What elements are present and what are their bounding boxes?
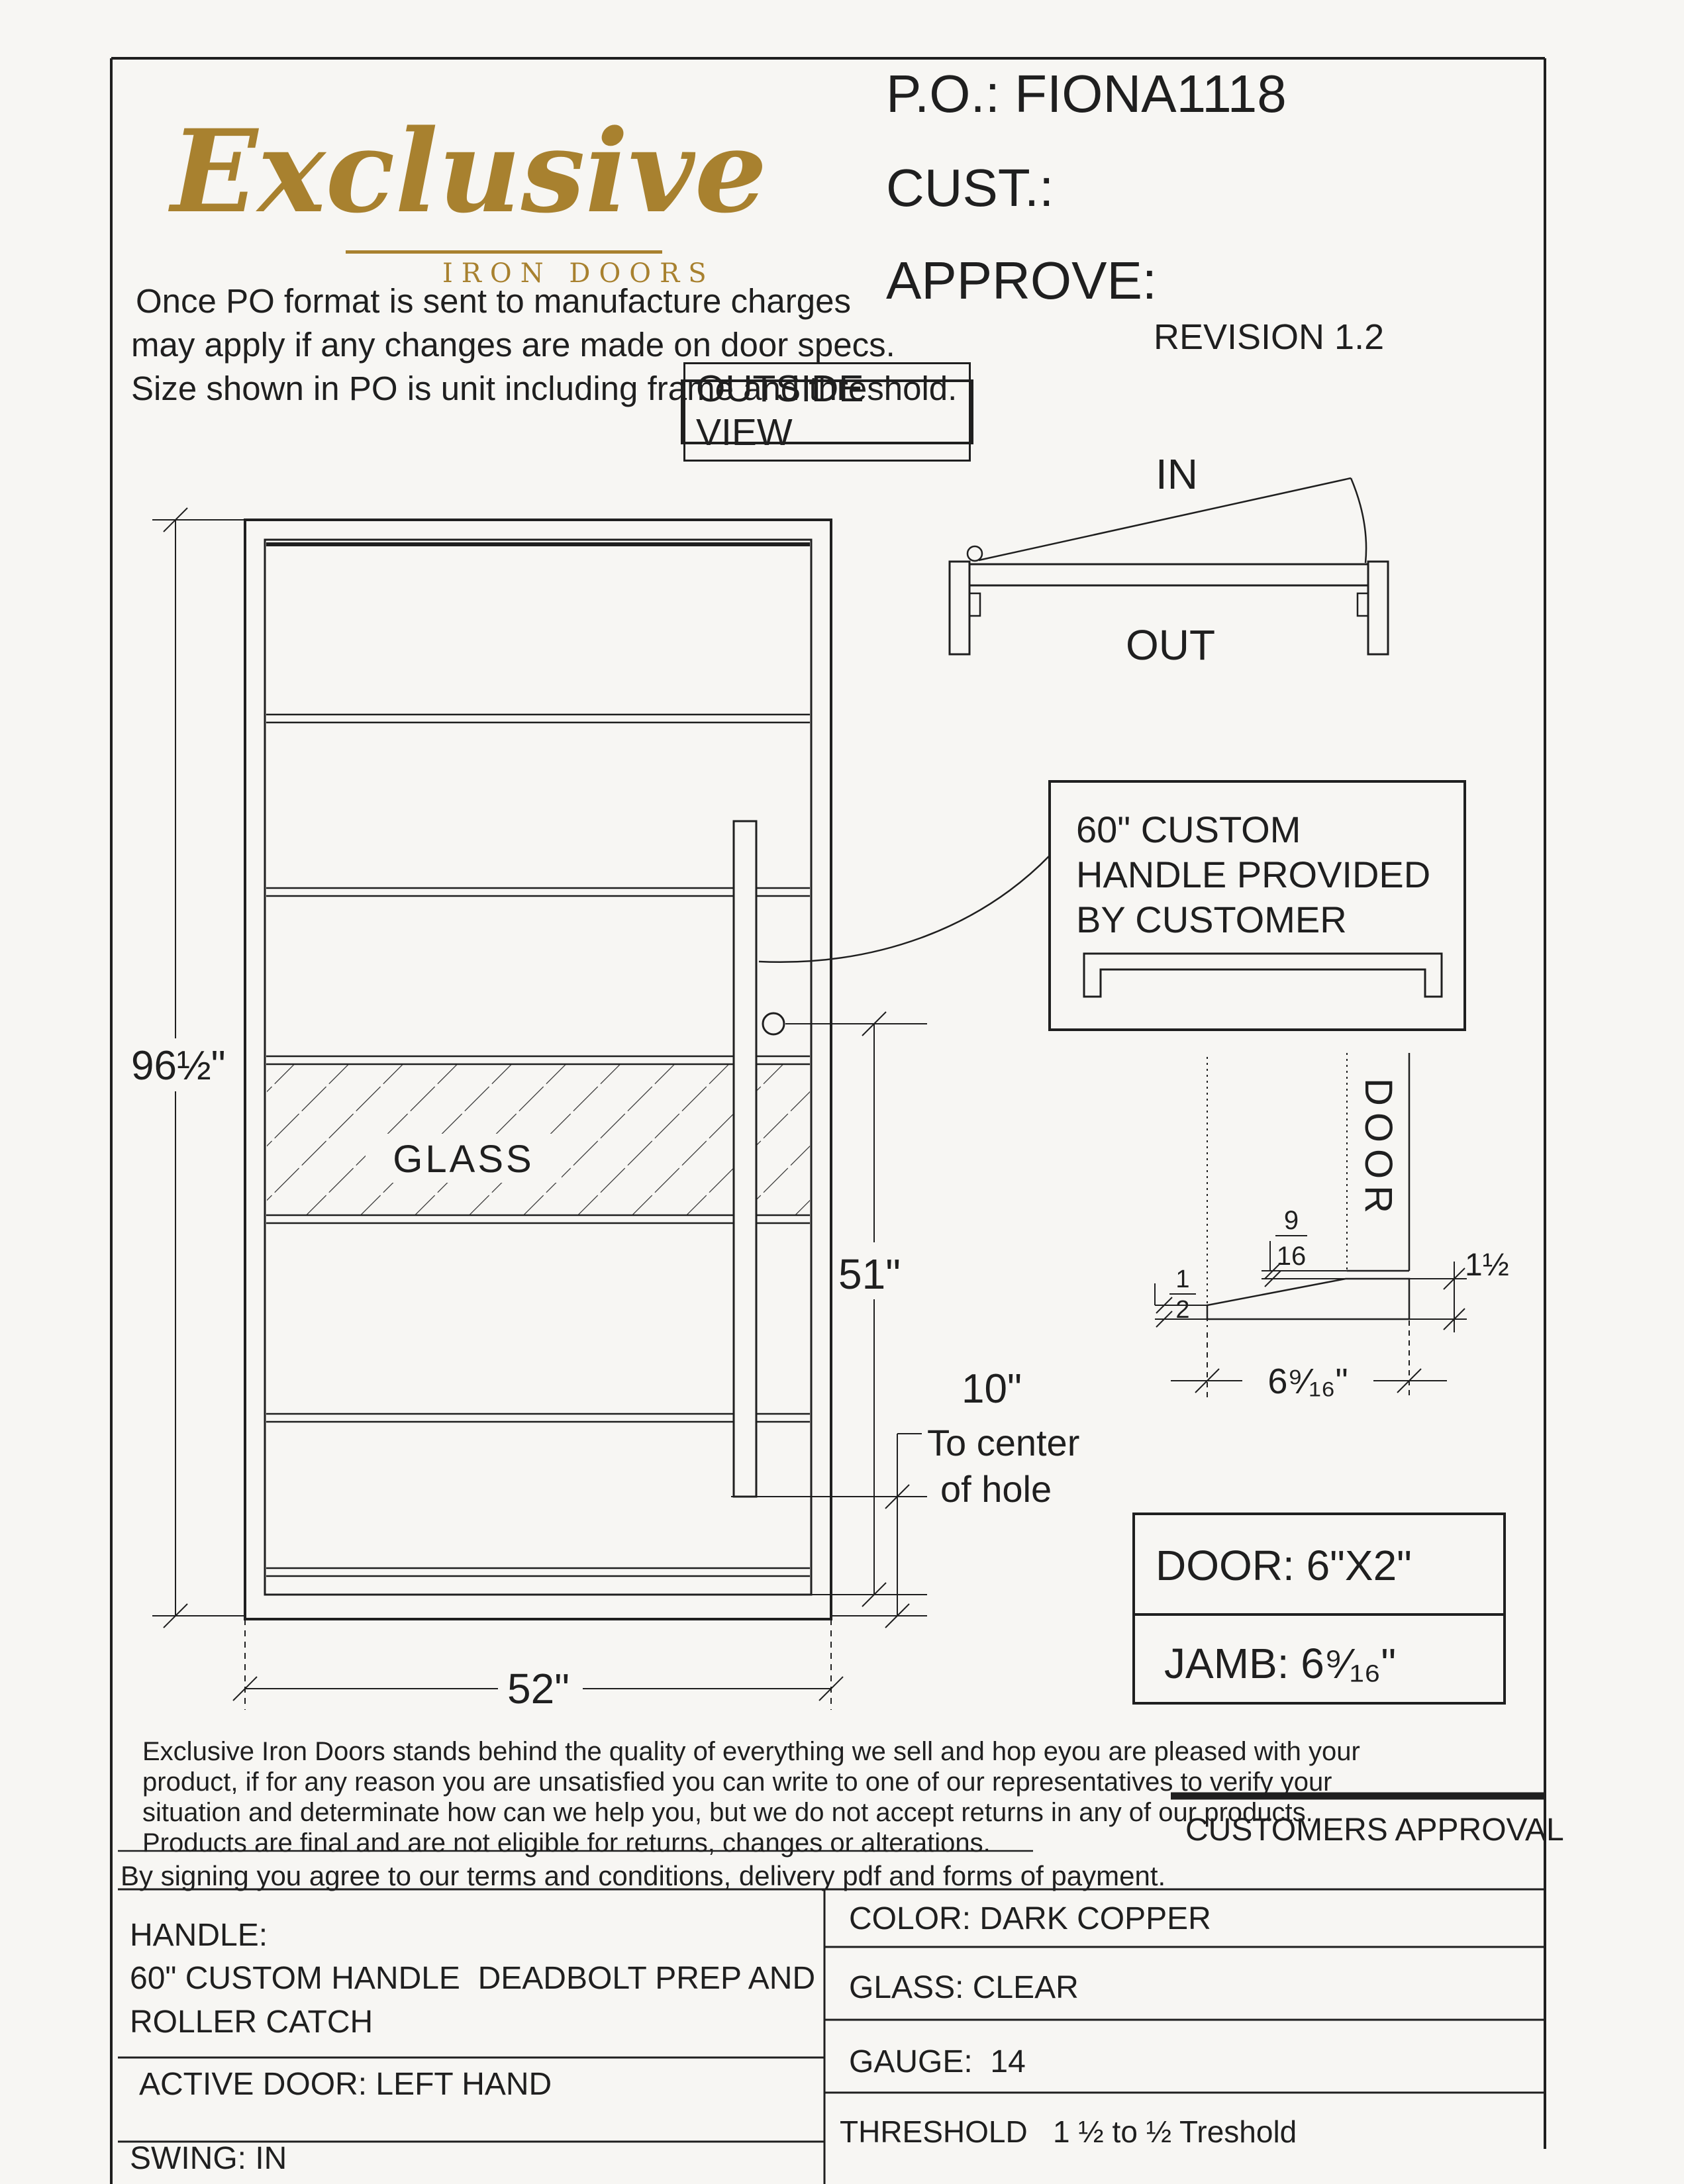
swing-diagram: IN OUT — [950, 450, 1388, 669]
jamb-height-dimension: 1½ — [1409, 1248, 1509, 1332]
spec-handle-title: HANDLE: — [130, 1917, 268, 1955]
hole-note-line1: To center — [927, 1422, 1079, 1464]
half-denominator: 2 — [1175, 1296, 1189, 1324]
handle-callout: 60" CUSTOM HANDLE PROVIDED BY CUSTOMER — [759, 781, 1465, 1030]
hole-note-line2: of hole — [940, 1468, 1052, 1510]
customer-field: CUST.: — [886, 157, 1054, 219]
handle-hole — [763, 1013, 784, 1034]
spec-threshold: THRESHOLD 1 ½ to ½ Treshold — [840, 2114, 1297, 2150]
revision-label: REVISION 1.2 — [1154, 317, 1384, 359]
swing-in-label: IN — [1156, 450, 1198, 498]
door-handle-bar — [734, 821, 756, 1497]
width-dim-label: 52" — [507, 1665, 570, 1712]
po-drawing-page: GLASS 96½" — [0, 0, 1684, 2184]
hole-offset-label: 10" — [962, 1366, 1022, 1412]
legal-line3: situation and determinate how can we hel… — [142, 1797, 1313, 1828]
customers-approval-label: CUSTOMERS APPROVAL — [1185, 1812, 1490, 1850]
legal-line4: Products are final and are not eligible … — [142, 1828, 991, 1859]
jamb-width-label: 6⁹⁄₁₆" — [1267, 1362, 1348, 1401]
callout-leader — [759, 856, 1050, 962]
swing-out-label: OUT — [1126, 621, 1215, 669]
door-size-label: DOOR: 6"X2" — [1156, 1542, 1412, 1589]
logo-underline — [346, 250, 662, 254]
spec-active-door: ACTIVE DOOR: LEFT HAND — [139, 2066, 552, 2104]
spec-handle-line1: 60" CUSTOM HANDLE DEADBOLT PREP AND — [130, 1960, 815, 1998]
threshold-ramp — [1207, 1279, 1409, 1319]
spec-gauge: GAUGE: 14 — [849, 2044, 1026, 2081]
po-number: P.O.: FIONA1118 — [886, 63, 1287, 125]
po-note-line1: Once PO format is sent to manufacture ch… — [136, 281, 851, 321]
spec-swing: SWING: IN — [130, 2140, 287, 2178]
approve-field: APPROVE: — [886, 250, 1157, 312]
gap-dimension: 9 16 — [1262, 1206, 1347, 1287]
door-plan-slab — [969, 564, 1368, 585]
dimension-hole-offset: 10" To center of hole — [731, 1366, 1079, 1628]
half-dimension: 1 2 — [1155, 1266, 1207, 1327]
callout-line2: HANDLE PROVIDED — [1076, 854, 1430, 895]
threshold-detail: DOOR 9 16 — [1155, 1053, 1509, 1401]
swing-arc — [1351, 478, 1366, 563]
jamb-height-label: 1½ — [1465, 1248, 1509, 1283]
detail-door-label: DOOR — [1357, 1078, 1400, 1220]
height-dim-label: 96½" — [131, 1043, 226, 1089]
outside-view-box: OUTSIDE VIEW — [681, 379, 973, 444]
jamb-size-label: JAMB: 6⁹⁄₁₆" — [1164, 1640, 1396, 1687]
spec-handle-line2: ROLLER CATCH — [130, 2004, 373, 2042]
spec-glass: GLASS: CLEAR — [849, 1969, 1079, 2007]
dimension-height: 96½" — [126, 508, 245, 1628]
callout-line3: BY CUSTOMER — [1076, 899, 1347, 940]
half-numerator: 1 — [1175, 1266, 1189, 1293]
right-jamb — [1368, 562, 1388, 654]
callout-line1: 60" CUSTOM — [1076, 809, 1301, 850]
spec-color: COLOR: DARK COPPER — [849, 1901, 1211, 1938]
gap-denominator: 16 — [1277, 1242, 1307, 1271]
legal-line2: product, if for any reason you are unsat… — [142, 1767, 1332, 1798]
spec-boxes: DOOR: 6"X2" JAMB: 6⁹⁄₁₆" — [1134, 1514, 1505, 1703]
logo-wordmark: Exclusive — [171, 105, 767, 239]
legal-line1: Exclusive Iron Doors stands behind the q… — [142, 1736, 1360, 1767]
dimension-width: 52" — [233, 1619, 843, 1714]
outside-view-label: OUTSIDE VIEW — [683, 362, 971, 462]
hole-height-label: 51" — [838, 1250, 901, 1298]
signing-note: By signing you agree to our terms and co… — [121, 1860, 1165, 1893]
door-elevation: GLASS — [245, 520, 831, 1619]
jamb-width-dimension: 6⁹⁄₁₆" — [1171, 1320, 1447, 1401]
handle-profile — [1084, 954, 1442, 997]
glass-label: GLASS — [393, 1138, 534, 1181]
gap-numerator: 9 — [1284, 1206, 1299, 1235]
pivot-hinge — [967, 546, 982, 561]
left-jamb — [950, 562, 969, 654]
po-note-line2: may apply if any changes are made on doo… — [131, 325, 895, 365]
